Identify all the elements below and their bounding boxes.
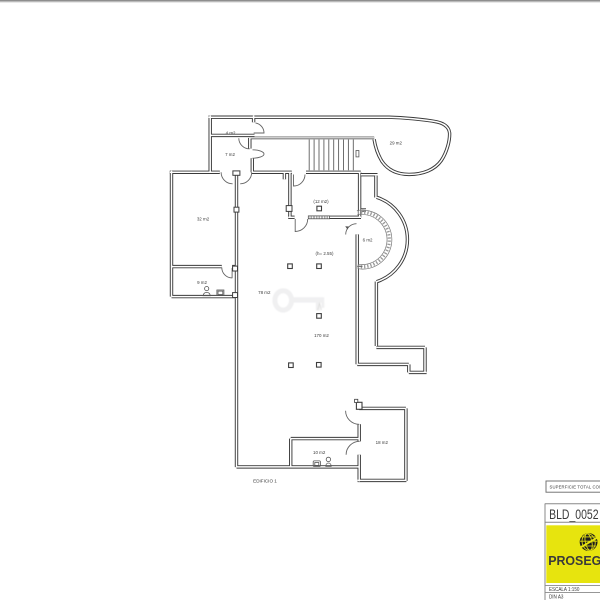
svg-text:DIN A3: DIN A3 [549, 594, 564, 600]
svg-text:6 m2: 6 m2 [363, 238, 373, 243]
svg-text:7 m2: 7 m2 [225, 152, 235, 157]
svg-text:9 m2: 9 m2 [197, 280, 207, 285]
svg-text:PROSEGUR: PROSEGUR [548, 553, 600, 568]
svg-text:(h= 2.55): (h= 2.55) [316, 251, 334, 256]
svg-text:(12 m2): (12 m2) [313, 199, 329, 204]
svg-text:SUPERFICIE TOTAL CONST: SUPERFICIE TOTAL CONST [550, 484, 600, 489]
svg-text:4 m2: 4 m2 [226, 130, 236, 135]
svg-text:29 m2: 29 m2 [390, 141, 403, 146]
svg-text:170 m2: 170 m2 [314, 333, 329, 338]
svg-text:32 m2: 32 m2 [197, 217, 210, 222]
svg-text:18 m2: 18 m2 [376, 440, 389, 445]
svg-text:BLD_0052: BLD_0052 [549, 507, 599, 523]
svg-text:EDIFICIO 1: EDIFICIO 1 [253, 479, 277, 484]
svg-text:78 m2: 78 m2 [258, 290, 271, 295]
svg-text:10 m2: 10 m2 [313, 450, 326, 455]
